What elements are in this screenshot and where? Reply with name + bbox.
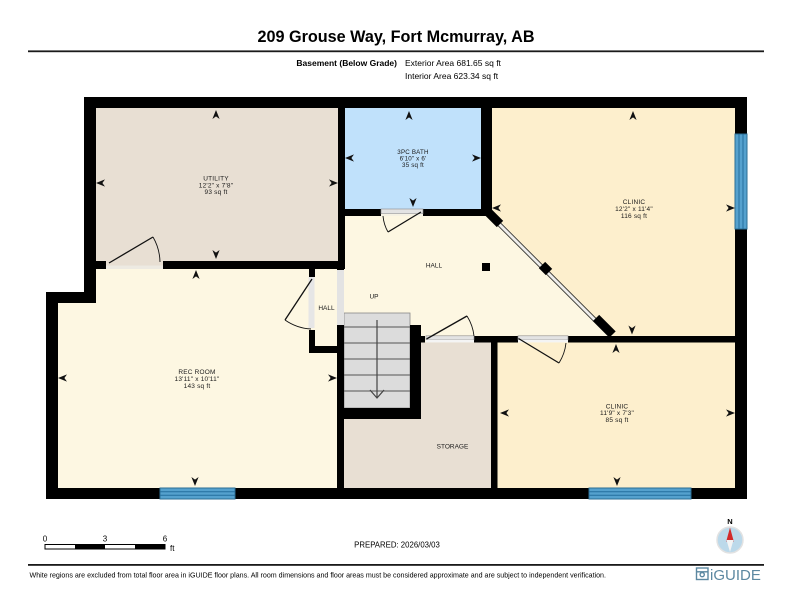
svg-text:White regions are excluded fro: White regions are excluded from total fl… bbox=[30, 572, 607, 580]
svg-text:3: 3 bbox=[103, 535, 108, 544]
svg-text:HALL: HALL bbox=[318, 305, 335, 312]
svg-text:ft: ft bbox=[170, 544, 175, 553]
svg-text:35 sq ft: 35 sq ft bbox=[402, 162, 424, 169]
svg-text:HALL: HALL bbox=[426, 263, 443, 270]
svg-text:6: 6 bbox=[163, 535, 168, 544]
svg-text:UP: UP bbox=[369, 294, 378, 301]
svg-text:STORAGE: STORAGE bbox=[437, 443, 469, 450]
svg-text:PREPARED: 2026/03/03: PREPARED: 2026/03/03 bbox=[354, 541, 440, 550]
svg-text:116 sq ft: 116 sq ft bbox=[621, 213, 647, 220]
svg-text:93 sq ft: 93 sq ft bbox=[205, 189, 228, 196]
svg-text:N: N bbox=[727, 517, 732, 526]
svg-text:Interior Area 623.34 sq ft: Interior Area 623.34 sq ft bbox=[405, 71, 499, 81]
svg-text:143 sq ft: 143 sq ft bbox=[184, 383, 211, 390]
svg-text:Basement (Below Grade): Basement (Below Grade) bbox=[296, 58, 397, 68]
svg-text:Exterior Area 681.65 sq ft: Exterior Area 681.65 sq ft bbox=[405, 58, 502, 68]
svg-text:209 Grouse Way, Fort Mcmurray,: 209 Grouse Way, Fort Mcmurray, AB bbox=[257, 28, 534, 46]
svg-text:iGUIDE: iGUIDE bbox=[710, 567, 761, 584]
svg-text:85 sq ft: 85 sq ft bbox=[606, 417, 629, 424]
svg-text:0: 0 bbox=[43, 535, 48, 544]
